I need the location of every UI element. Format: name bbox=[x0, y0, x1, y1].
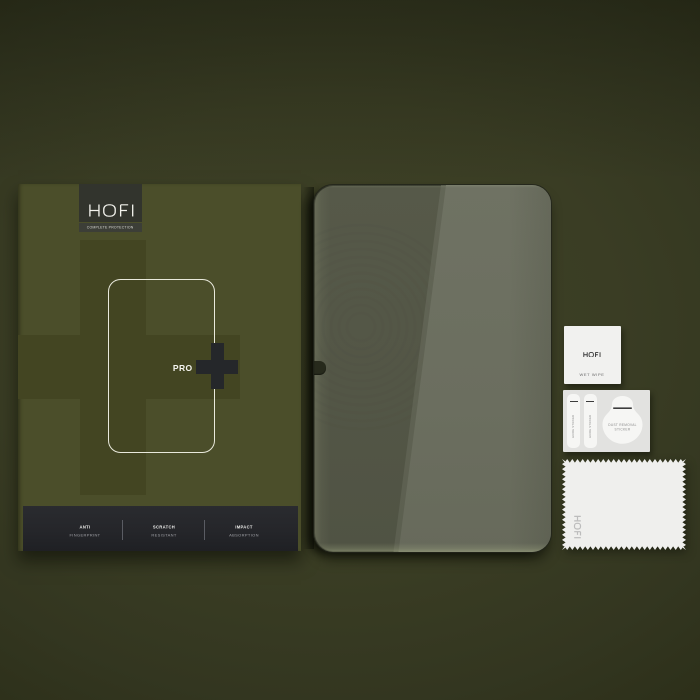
svg-text:STICKER: STICKER bbox=[615, 428, 631, 432]
svg-text:DUST REMOVAL: DUST REMOVAL bbox=[608, 423, 636, 427]
